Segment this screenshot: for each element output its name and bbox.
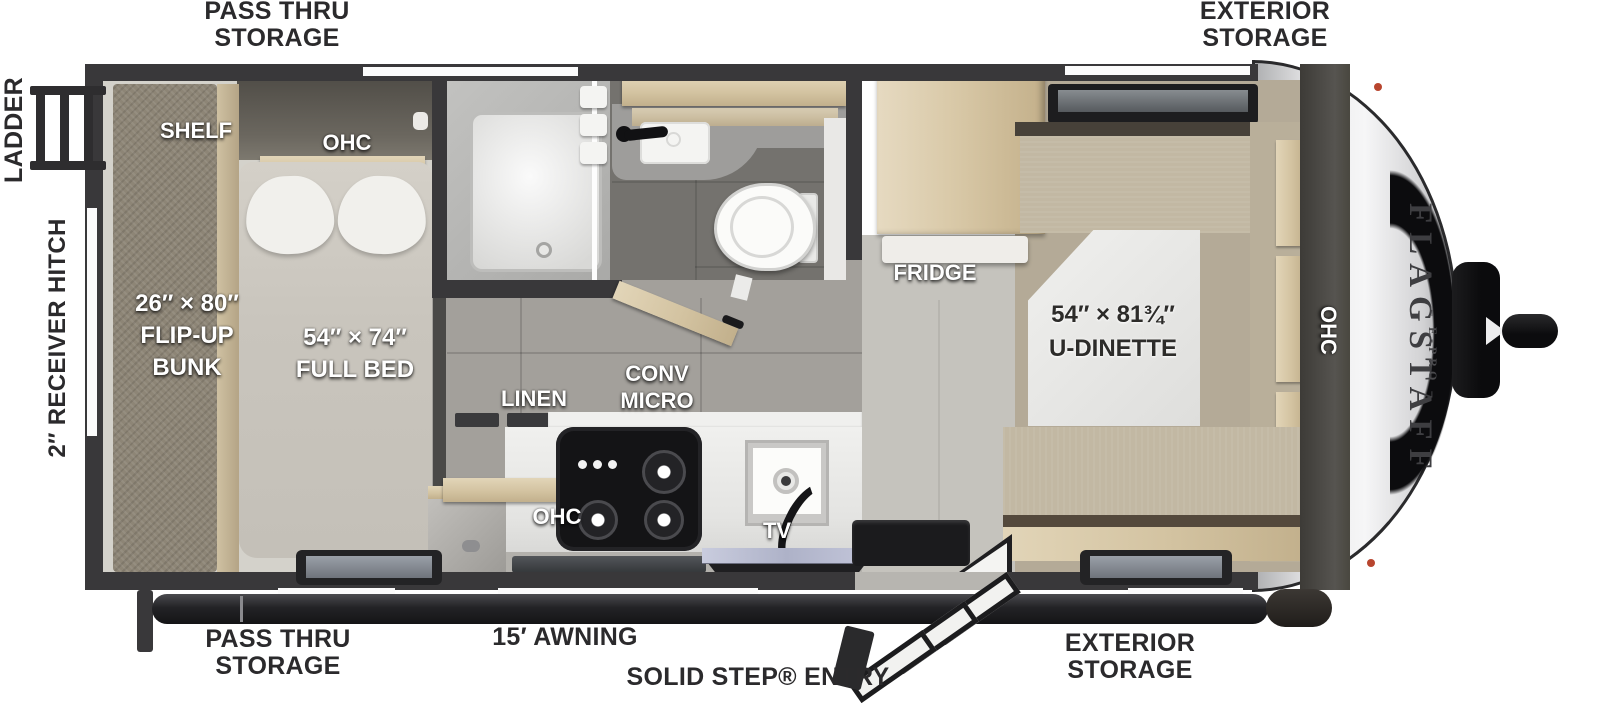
bath-wall-right [846, 64, 862, 260]
label-bunk: 26″ × 80″ FLIP-UP BUNK [107, 288, 267, 384]
cooktop-knob-icon [578, 460, 587, 469]
label-ladder: LADDER [1, 70, 27, 190]
label-line: FLIP-UP [107, 320, 267, 352]
label-exterior-storage-top: EXTERIOR STORAGE [1155, 0, 1375, 52]
floorplan: FLAGSTAFF – E-PRO – [0, 0, 1600, 703]
label-tv: TV [752, 518, 802, 544]
label-pass-thru-top: PASS THRU STORAGE [167, 0, 387, 52]
stove-glass-cover [512, 556, 706, 573]
label-line: U-DINETTE [1023, 332, 1203, 366]
tile-grout [938, 300, 940, 520]
label-line: FULL BED [265, 354, 445, 386]
label-line: EXTERIOR [1020, 630, 1240, 657]
label-line: PASS THRU [168, 626, 388, 653]
label-line: CONV [607, 360, 707, 387]
label-ohc-dinette: OHC [1311, 294, 1341, 366]
shower-caddy-icon [580, 86, 607, 108]
label-line: BUNK [107, 352, 267, 384]
shower-drain-icon [536, 242, 552, 258]
label-fridge: FRIDGE [875, 260, 995, 286]
linen-slot-icon [507, 413, 551, 427]
toilet-seat-ring-icon [730, 196, 794, 258]
ladder-rung-icon [60, 88, 69, 168]
label-linen: LINEN [484, 386, 584, 412]
linen-slot-icon [455, 413, 499, 427]
bedroom-window-glass [306, 556, 432, 578]
label-pass-thru-bottom: PASS THRU STORAGE [168, 626, 388, 680]
label-line: STORAGE [167, 25, 387, 52]
tv-mount-hub-icon [781, 476, 791, 486]
label-solid-step-entry: SOLID STEP® ENTRY [608, 664, 908, 691]
baggage-door-slot [363, 67, 578, 76]
label-line: STORAGE [1020, 657, 1240, 684]
fridge-drawer [882, 236, 1028, 263]
tile-grout [695, 180, 697, 280]
tile-grout [447, 352, 862, 354]
dinette-window-glass [1058, 90, 1248, 112]
reading-light-icon [413, 112, 428, 130]
label-receiver-hitch: 2″ RECEIVER HITCH [44, 198, 70, 478]
awning-rail-seam [240, 596, 243, 622]
cooktop-knob-icon [593, 460, 602, 469]
burner-icon [644, 500, 684, 540]
dinette-bottom-window-glass [1090, 556, 1222, 578]
label-u-dinette: 54″ × 81¾″ U-DINETTE [1023, 298, 1203, 366]
cooktop [556, 427, 702, 551]
label-line: 54″ × 81¾″ [1023, 298, 1203, 332]
label-conv-micro: CONV MICRO [607, 360, 707, 414]
awning-bracket-right [1266, 589, 1332, 627]
ladder-rung-icon [36, 88, 45, 168]
dinette-bench-bottom-trim [1003, 515, 1305, 527]
ladder-rung-icon [84, 88, 93, 168]
bath-wall-bottom [432, 280, 622, 298]
bath-inner-wall-white [824, 118, 846, 280]
tile-grout [612, 181, 846, 183]
dinette-bench-bottom [1003, 427, 1305, 527]
label-line: MICRO [607, 387, 707, 414]
label-exterior-storage-bottom: EXTERIOR STORAGE [1020, 630, 1240, 684]
kitchen-sink-glass [702, 548, 872, 563]
label-line: 54″ × 74″ [265, 322, 445, 354]
wardrobe-knob-icon [462, 540, 480, 552]
label-ohc-bed: OHC [312, 130, 382, 156]
burner-icon [642, 450, 686, 494]
baggage-door-slot [1065, 66, 1250, 75]
brand-sub-logo: – E-PRO – [1424, 296, 1440, 416]
shower-caddy-icon [580, 114, 607, 136]
cooktop-knob-icon [608, 460, 617, 469]
marker-light-bottom-icon [1367, 559, 1375, 567]
bath-wall-left [432, 80, 447, 298]
marker-light-top-icon [1374, 83, 1382, 91]
label-line: STORAGE [1155, 25, 1375, 52]
tongue-jack [1502, 314, 1558, 348]
label-line: EXTERIOR [1155, 0, 1375, 25]
label-line: STORAGE [168, 653, 388, 680]
label-line: 26″ × 80″ [107, 288, 267, 320]
bath-sink-drain-icon [666, 132, 681, 147]
label-ohc-kitchen: OHC [522, 504, 592, 530]
step-well [852, 520, 970, 566]
label-awning: 15′ AWNING [455, 624, 675, 651]
awning-rail [152, 594, 1268, 624]
bumper-strip [87, 208, 97, 436]
shower-caddy-icon [580, 142, 607, 164]
label-shelf: SHELF [146, 118, 246, 144]
awning-bracket-left [137, 590, 153, 652]
label-line: PASS THRU [167, 0, 387, 25]
shower-rod [592, 78, 597, 282]
label-full-bed: 54″ × 74″ FULL BED [265, 322, 445, 386]
